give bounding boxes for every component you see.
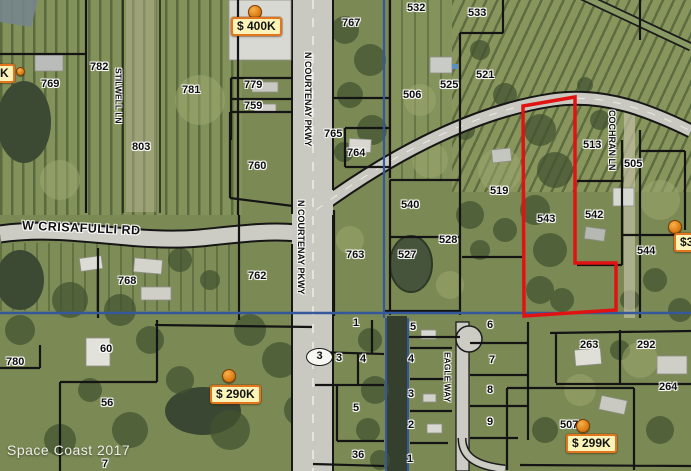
parcel-label: 264 bbox=[659, 382, 677, 393]
parcel-label: 36 bbox=[352, 450, 364, 461]
parcel-label: 763 bbox=[346, 250, 364, 261]
parcel-label: 60 bbox=[100, 344, 112, 355]
parcel-label: 542 bbox=[585, 210, 603, 221]
price-badge[interactable]: $ 299K bbox=[566, 434, 617, 453]
parcel-label: 505 bbox=[624, 159, 642, 170]
parcel-label: 4 bbox=[360, 354, 366, 365]
parcel-label: 7 bbox=[102, 459, 108, 470]
parcel-label: 292 bbox=[637, 340, 655, 351]
price-pin-icon[interactable] bbox=[16, 67, 25, 76]
parcel-label: 1 bbox=[353, 318, 359, 329]
parcel-label: 803 bbox=[132, 142, 150, 153]
parcel-label: 7 bbox=[489, 355, 495, 366]
parcel-label: 780 bbox=[6, 357, 24, 368]
parcel-label: 527 bbox=[398, 250, 416, 261]
road-label: COCHRAN LN bbox=[607, 110, 616, 171]
parcel-label: 760 bbox=[248, 161, 266, 172]
parcel-label: 519 bbox=[490, 186, 508, 197]
map-attribution: Space Coast 2017 bbox=[7, 442, 130, 458]
price-pin-icon[interactable] bbox=[576, 419, 590, 433]
parcel-label: 2 bbox=[408, 420, 414, 431]
price-badge[interactable]: $ 290K bbox=[210, 385, 261, 404]
parcel-label: 781 bbox=[182, 85, 200, 96]
price-pin-icon[interactable] bbox=[222, 369, 236, 383]
parcel-label: 6 bbox=[487, 320, 493, 331]
parcel-label: 543 bbox=[537, 214, 555, 225]
parcel-label: 765 bbox=[324, 129, 342, 140]
price-pin-icon[interactable] bbox=[668, 220, 682, 234]
parcel-label: 1 bbox=[407, 454, 413, 465]
parcel-label: 525 bbox=[440, 80, 458, 91]
parcel-label: 767 bbox=[342, 18, 360, 29]
price-badge[interactable]: $3 bbox=[674, 233, 691, 252]
parcel-label: 533 bbox=[468, 8, 486, 19]
parcel-label: 768 bbox=[118, 276, 136, 287]
parcel-label: 3 bbox=[336, 353, 342, 364]
parcel-label: 5 bbox=[353, 403, 359, 414]
parcel-label: 521 bbox=[476, 70, 494, 81]
parcel-label: 513 bbox=[583, 140, 601, 151]
parcel-label: 544 bbox=[637, 246, 655, 257]
parcel-label: 506 bbox=[403, 90, 421, 101]
parcel-label: 9 bbox=[487, 417, 493, 428]
price-badge[interactable]: $ 400K bbox=[231, 17, 282, 36]
road-label: STILWELL LN bbox=[114, 68, 123, 124]
parcel-label: 5 bbox=[410, 322, 416, 333]
road-label: EAGLE WAY bbox=[443, 352, 452, 402]
parcel-label: 8 bbox=[487, 385, 493, 396]
parcel-label: 532 bbox=[407, 3, 425, 14]
parcel-label: 769 bbox=[41, 79, 59, 90]
route-3-shield: 3 bbox=[306, 348, 333, 366]
parcel-label: 56 bbox=[101, 398, 113, 409]
parcel-label: 759 bbox=[244, 101, 262, 112]
road-label: N COURTENAY PKWY bbox=[296, 200, 305, 295]
parcel-label: 4 bbox=[408, 354, 414, 365]
parcel-label: 3 bbox=[408, 389, 414, 400]
parcel-label: 540 bbox=[401, 200, 419, 211]
parcel-label: 764 bbox=[347, 148, 365, 159]
parcel-label: 782 bbox=[90, 62, 108, 73]
aerial-map[interactable]: 7827697818037797597675325335215255065135… bbox=[0, 0, 691, 471]
parcel-label: 528 bbox=[439, 235, 457, 246]
parcel-label: 762 bbox=[248, 271, 266, 282]
price-badge[interactable]: K bbox=[0, 64, 15, 83]
parcel-label: 779 bbox=[244, 80, 262, 91]
parcel-label: 263 bbox=[580, 340, 598, 351]
road-label: N COURTENAY PKWY bbox=[303, 52, 312, 147]
